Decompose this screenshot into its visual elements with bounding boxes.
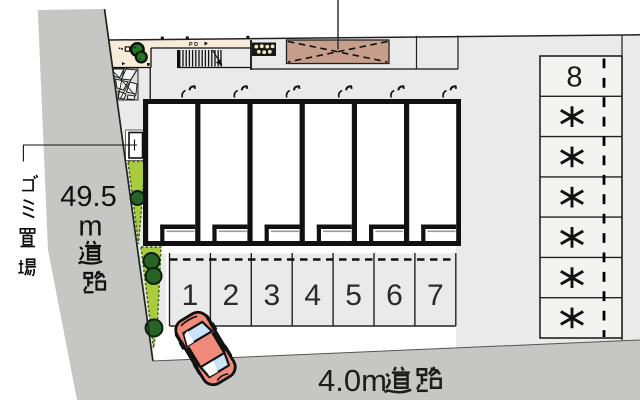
svg-text:2: 2	[223, 279, 240, 312]
svg-text:P D: P D	[189, 42, 198, 48]
svg-text:8: 8	[566, 62, 582, 94]
svg-text:1: 1	[182, 279, 199, 312]
svg-text:m: m	[78, 211, 102, 243]
svg-text:49.5: 49.5	[60, 181, 116, 213]
svg-text:7: 7	[427, 279, 444, 312]
svg-text:4: 4	[304, 279, 321, 312]
svg-text:4.0m: 4.0m	[318, 363, 387, 398]
svg-text:6: 6	[386, 279, 403, 312]
svg-text:3: 3	[263, 279, 280, 312]
svg-text:5: 5	[345, 279, 362, 312]
